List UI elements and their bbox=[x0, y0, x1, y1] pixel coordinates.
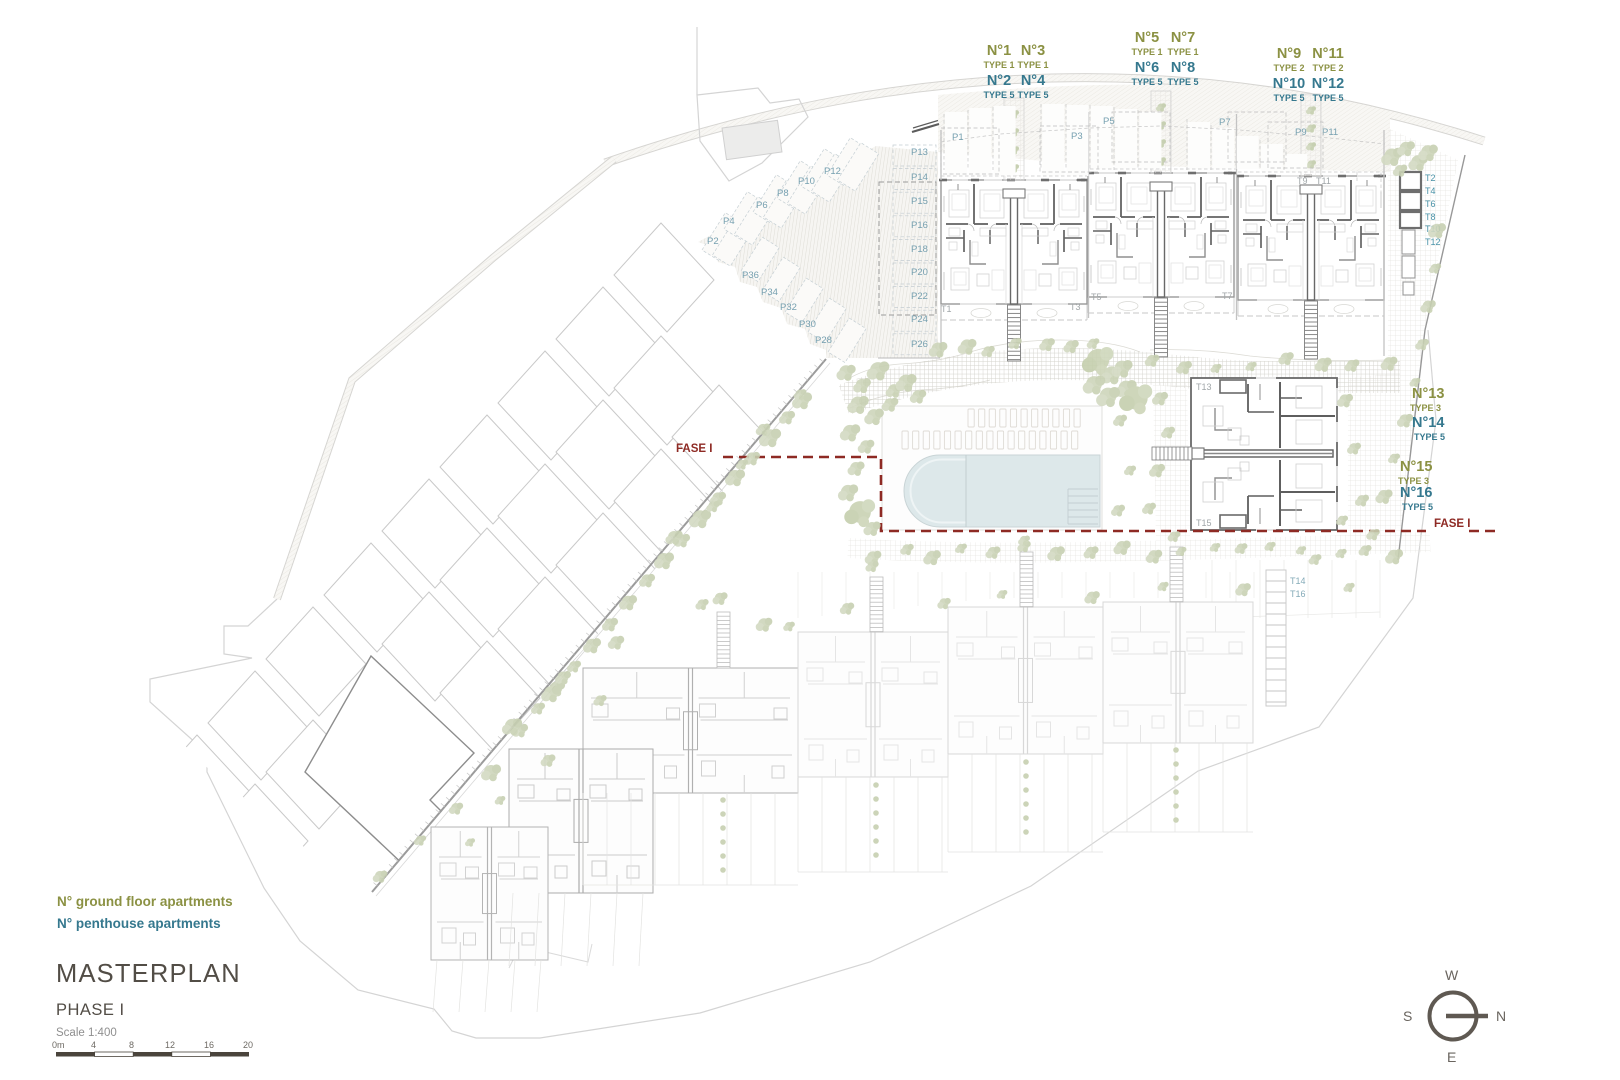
svg-text:N°2: N°2 bbox=[987, 73, 1011, 89]
svg-text:20: 20 bbox=[243, 1040, 253, 1050]
svg-text:P28: P28 bbox=[815, 335, 832, 346]
svg-text:N°5: N°5 bbox=[1135, 30, 1159, 46]
svg-text:0m: 0m bbox=[52, 1040, 65, 1050]
svg-text:N°12: N°12 bbox=[1312, 76, 1344, 92]
svg-text:N° penthouse apartments: N° penthouse apartments bbox=[57, 916, 221, 931]
svg-text:P16: P16 bbox=[911, 220, 928, 231]
svg-text:P36: P36 bbox=[742, 270, 759, 281]
svg-text:P20: P20 bbox=[911, 267, 928, 278]
svg-text:N°15: N°15 bbox=[1400, 459, 1432, 475]
svg-text:N°4: N°4 bbox=[1021, 73, 1045, 89]
svg-text:TYPE 1: TYPE 1 bbox=[983, 60, 1014, 70]
svg-text:P7: P7 bbox=[1219, 117, 1231, 128]
svg-text:T5: T5 bbox=[1091, 292, 1102, 302]
svg-text:P10: P10 bbox=[798, 176, 815, 187]
svg-text:T2: T2 bbox=[1425, 173, 1436, 183]
svg-text:T6: T6 bbox=[1425, 199, 1436, 209]
svg-text:TYPE 3: TYPE 3 bbox=[1410, 403, 1441, 413]
svg-text:TYPE 5: TYPE 5 bbox=[1402, 502, 1433, 512]
svg-text:P34: P34 bbox=[761, 287, 778, 298]
svg-text:12: 12 bbox=[165, 1040, 175, 1050]
svg-text:N°6: N°6 bbox=[1135, 60, 1159, 76]
svg-text:N°1: N°1 bbox=[987, 43, 1011, 59]
svg-text:N°9: N°9 bbox=[1277, 46, 1301, 62]
svg-text:S: S bbox=[1403, 1008, 1412, 1024]
svg-text:T12: T12 bbox=[1425, 237, 1441, 247]
svg-text:N°10: N°10 bbox=[1273, 76, 1305, 92]
svg-text:TYPE 5: TYPE 5 bbox=[1273, 93, 1304, 103]
svg-text:TYPE 5: TYPE 5 bbox=[1312, 93, 1343, 103]
svg-text:T16: T16 bbox=[1290, 589, 1306, 599]
svg-text:P32: P32 bbox=[780, 302, 797, 313]
svg-text:TYPE 1: TYPE 1 bbox=[1017, 60, 1048, 70]
svg-text:P4: P4 bbox=[723, 216, 735, 227]
svg-text:N° ground floor apartments: N° ground floor apartments bbox=[57, 894, 233, 909]
svg-text:TYPE 2: TYPE 2 bbox=[1312, 63, 1343, 73]
svg-text:P6: P6 bbox=[756, 200, 768, 211]
svg-text:P24: P24 bbox=[911, 314, 928, 325]
svg-text:T8: T8 bbox=[1425, 212, 1436, 222]
svg-text:P5: P5 bbox=[1103, 116, 1115, 127]
svg-text:FASE I: FASE I bbox=[1434, 518, 1470, 530]
svg-text:T11: T11 bbox=[1316, 176, 1331, 186]
svg-text:P9: P9 bbox=[1295, 127, 1307, 138]
svg-text:FASE I: FASE I bbox=[676, 443, 712, 455]
svg-text:P18: P18 bbox=[911, 244, 928, 255]
svg-text:N°14: N°14 bbox=[1412, 415, 1444, 431]
svg-text:P30: P30 bbox=[799, 319, 816, 330]
svg-text:T3: T3 bbox=[1070, 302, 1081, 312]
svg-text:TYPE 1: TYPE 1 bbox=[1131, 47, 1162, 57]
svg-text:T7: T7 bbox=[1222, 291, 1233, 301]
svg-text:N°8: N°8 bbox=[1171, 60, 1195, 76]
svg-text:P15: P15 bbox=[911, 196, 928, 207]
svg-text:Scale 1:400: Scale 1:400 bbox=[56, 1027, 117, 1039]
svg-text:MASTERPLAN: MASTERPLAN bbox=[56, 960, 241, 988]
svg-text:P1: P1 bbox=[952, 132, 964, 143]
svg-text:N°3: N°3 bbox=[1021, 43, 1045, 59]
svg-text:T9: T9 bbox=[1297, 176, 1308, 186]
svg-text:TYPE 5: TYPE 5 bbox=[1017, 90, 1048, 100]
svg-text:8: 8 bbox=[129, 1040, 134, 1050]
svg-text:T1: T1 bbox=[941, 304, 952, 314]
svg-text:W: W bbox=[1445, 967, 1459, 983]
svg-text:P13: P13 bbox=[911, 147, 928, 158]
svg-text:TYPE 5: TYPE 5 bbox=[1167, 77, 1198, 87]
svg-text:TYPE 5: TYPE 5 bbox=[1414, 432, 1445, 442]
svg-text:4: 4 bbox=[91, 1040, 96, 1050]
svg-text:P12: P12 bbox=[824, 166, 841, 177]
svg-text:T15: T15 bbox=[1196, 518, 1212, 528]
svg-text:P14: P14 bbox=[911, 172, 928, 183]
svg-text:P3: P3 bbox=[1071, 131, 1083, 142]
svg-text:N°16: N°16 bbox=[1400, 485, 1432, 501]
svg-text:P11: P11 bbox=[1322, 127, 1338, 138]
svg-text:TYPE 2: TYPE 2 bbox=[1273, 63, 1304, 73]
svg-text:P22: P22 bbox=[911, 291, 928, 302]
svg-text:PHASE I: PHASE I bbox=[56, 1001, 125, 1019]
svg-text:T4: T4 bbox=[1425, 186, 1436, 196]
svg-text:N°7: N°7 bbox=[1171, 30, 1195, 46]
svg-text:P8: P8 bbox=[777, 188, 789, 199]
svg-text:T14: T14 bbox=[1290, 576, 1306, 586]
svg-text:TYPE 5: TYPE 5 bbox=[1131, 77, 1162, 87]
svg-text:TYPE 5: TYPE 5 bbox=[983, 90, 1014, 100]
svg-text:N°11: N°11 bbox=[1312, 46, 1344, 62]
svg-text:16: 16 bbox=[204, 1040, 214, 1050]
svg-text:P2: P2 bbox=[707, 236, 719, 247]
svg-text:E: E bbox=[1447, 1049, 1456, 1065]
svg-text:TYPE 1: TYPE 1 bbox=[1167, 47, 1198, 57]
svg-text:N: N bbox=[1496, 1008, 1506, 1024]
svg-text:T13: T13 bbox=[1196, 382, 1212, 392]
svg-text:N°13: N°13 bbox=[1412, 386, 1444, 402]
svg-text:P26: P26 bbox=[911, 339, 928, 350]
